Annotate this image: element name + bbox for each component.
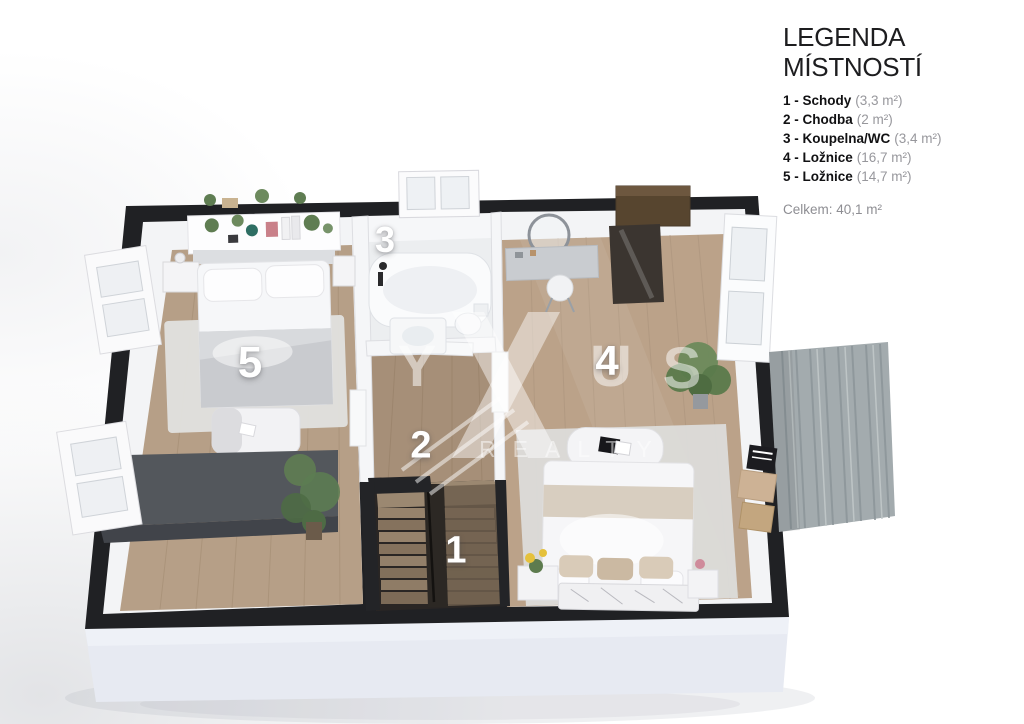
floorplan-page: Y U S REALTY 5 3 2 1 4 LEGENDA MÍSTNOSTÍ…	[0, 0, 1024, 724]
legend-title: LEGENDA MÍSTNOSTÍ	[783, 22, 1018, 82]
room-label-2: 2	[410, 425, 431, 468]
room5-nightstand-right	[333, 256, 355, 286]
door-room5	[350, 390, 366, 446]
legend-item-label: 2 - Chodba	[783, 112, 853, 127]
room5-bed	[197, 260, 333, 407]
legend-item-label: 3 - Koupelna/WC	[783, 131, 890, 146]
legend-item-area: (2 m²)	[857, 112, 893, 127]
room-label-4: 4	[595, 337, 618, 385]
legend-total: Celkem: 40,1 m²	[783, 202, 1018, 217]
room-label-5: 5	[238, 338, 262, 388]
legend-item-area: (14,7 m²)	[857, 169, 912, 184]
watermark-letter-s: S	[663, 336, 702, 401]
room5-lamp-left	[175, 253, 185, 263]
legend-item-area: (3,3 m²)	[855, 93, 902, 108]
legend-item-5: 5 - Ložnice(14,7 m²)	[783, 167, 1018, 186]
terrace-mat	[769, 342, 895, 532]
window-right	[717, 214, 777, 363]
legend-item-label: 4 - Ložnice	[783, 150, 853, 165]
legend-item-label: 1 - Schody	[783, 93, 851, 108]
legend-item-area: (3,4 m²)	[894, 131, 941, 146]
legend-item-2: 2 - Chodba(2 m²)	[783, 110, 1018, 129]
room5-shelf	[188, 212, 341, 254]
vanity-stool	[547, 275, 573, 301]
room4-headboard-pattern	[558, 583, 698, 611]
legend-items: 1 - Schody(3,3 m²) 2 - Chodba(2 m²) 3 - …	[783, 91, 1018, 186]
room-label-1: 1	[445, 530, 466, 573]
room-label-3: 3	[375, 219, 395, 261]
room5-nightstand-left	[163, 262, 199, 292]
watermark-letter-y: Y	[398, 334, 437, 399]
legend-item-label: 5 - Ložnice	[783, 169, 853, 184]
legend-item-4: 4 - Ložnice(16,7 m²)	[783, 148, 1018, 167]
bathroom-window	[399, 170, 480, 217]
watermark-subtext: REALTY	[479, 436, 669, 462]
legend-item-3: 3 - Koupelna/WC(3,4 m²)	[783, 129, 1018, 148]
legend-item-1: 1 - Schody(3,3 m²)	[783, 91, 1018, 110]
legend-item-area: (16,7 m²)	[857, 150, 912, 165]
room5-bench	[212, 408, 300, 454]
legend: LEGENDA MÍSTNOSTÍ 1 - Schody(3,3 m²) 2 -…	[783, 22, 1018, 217]
